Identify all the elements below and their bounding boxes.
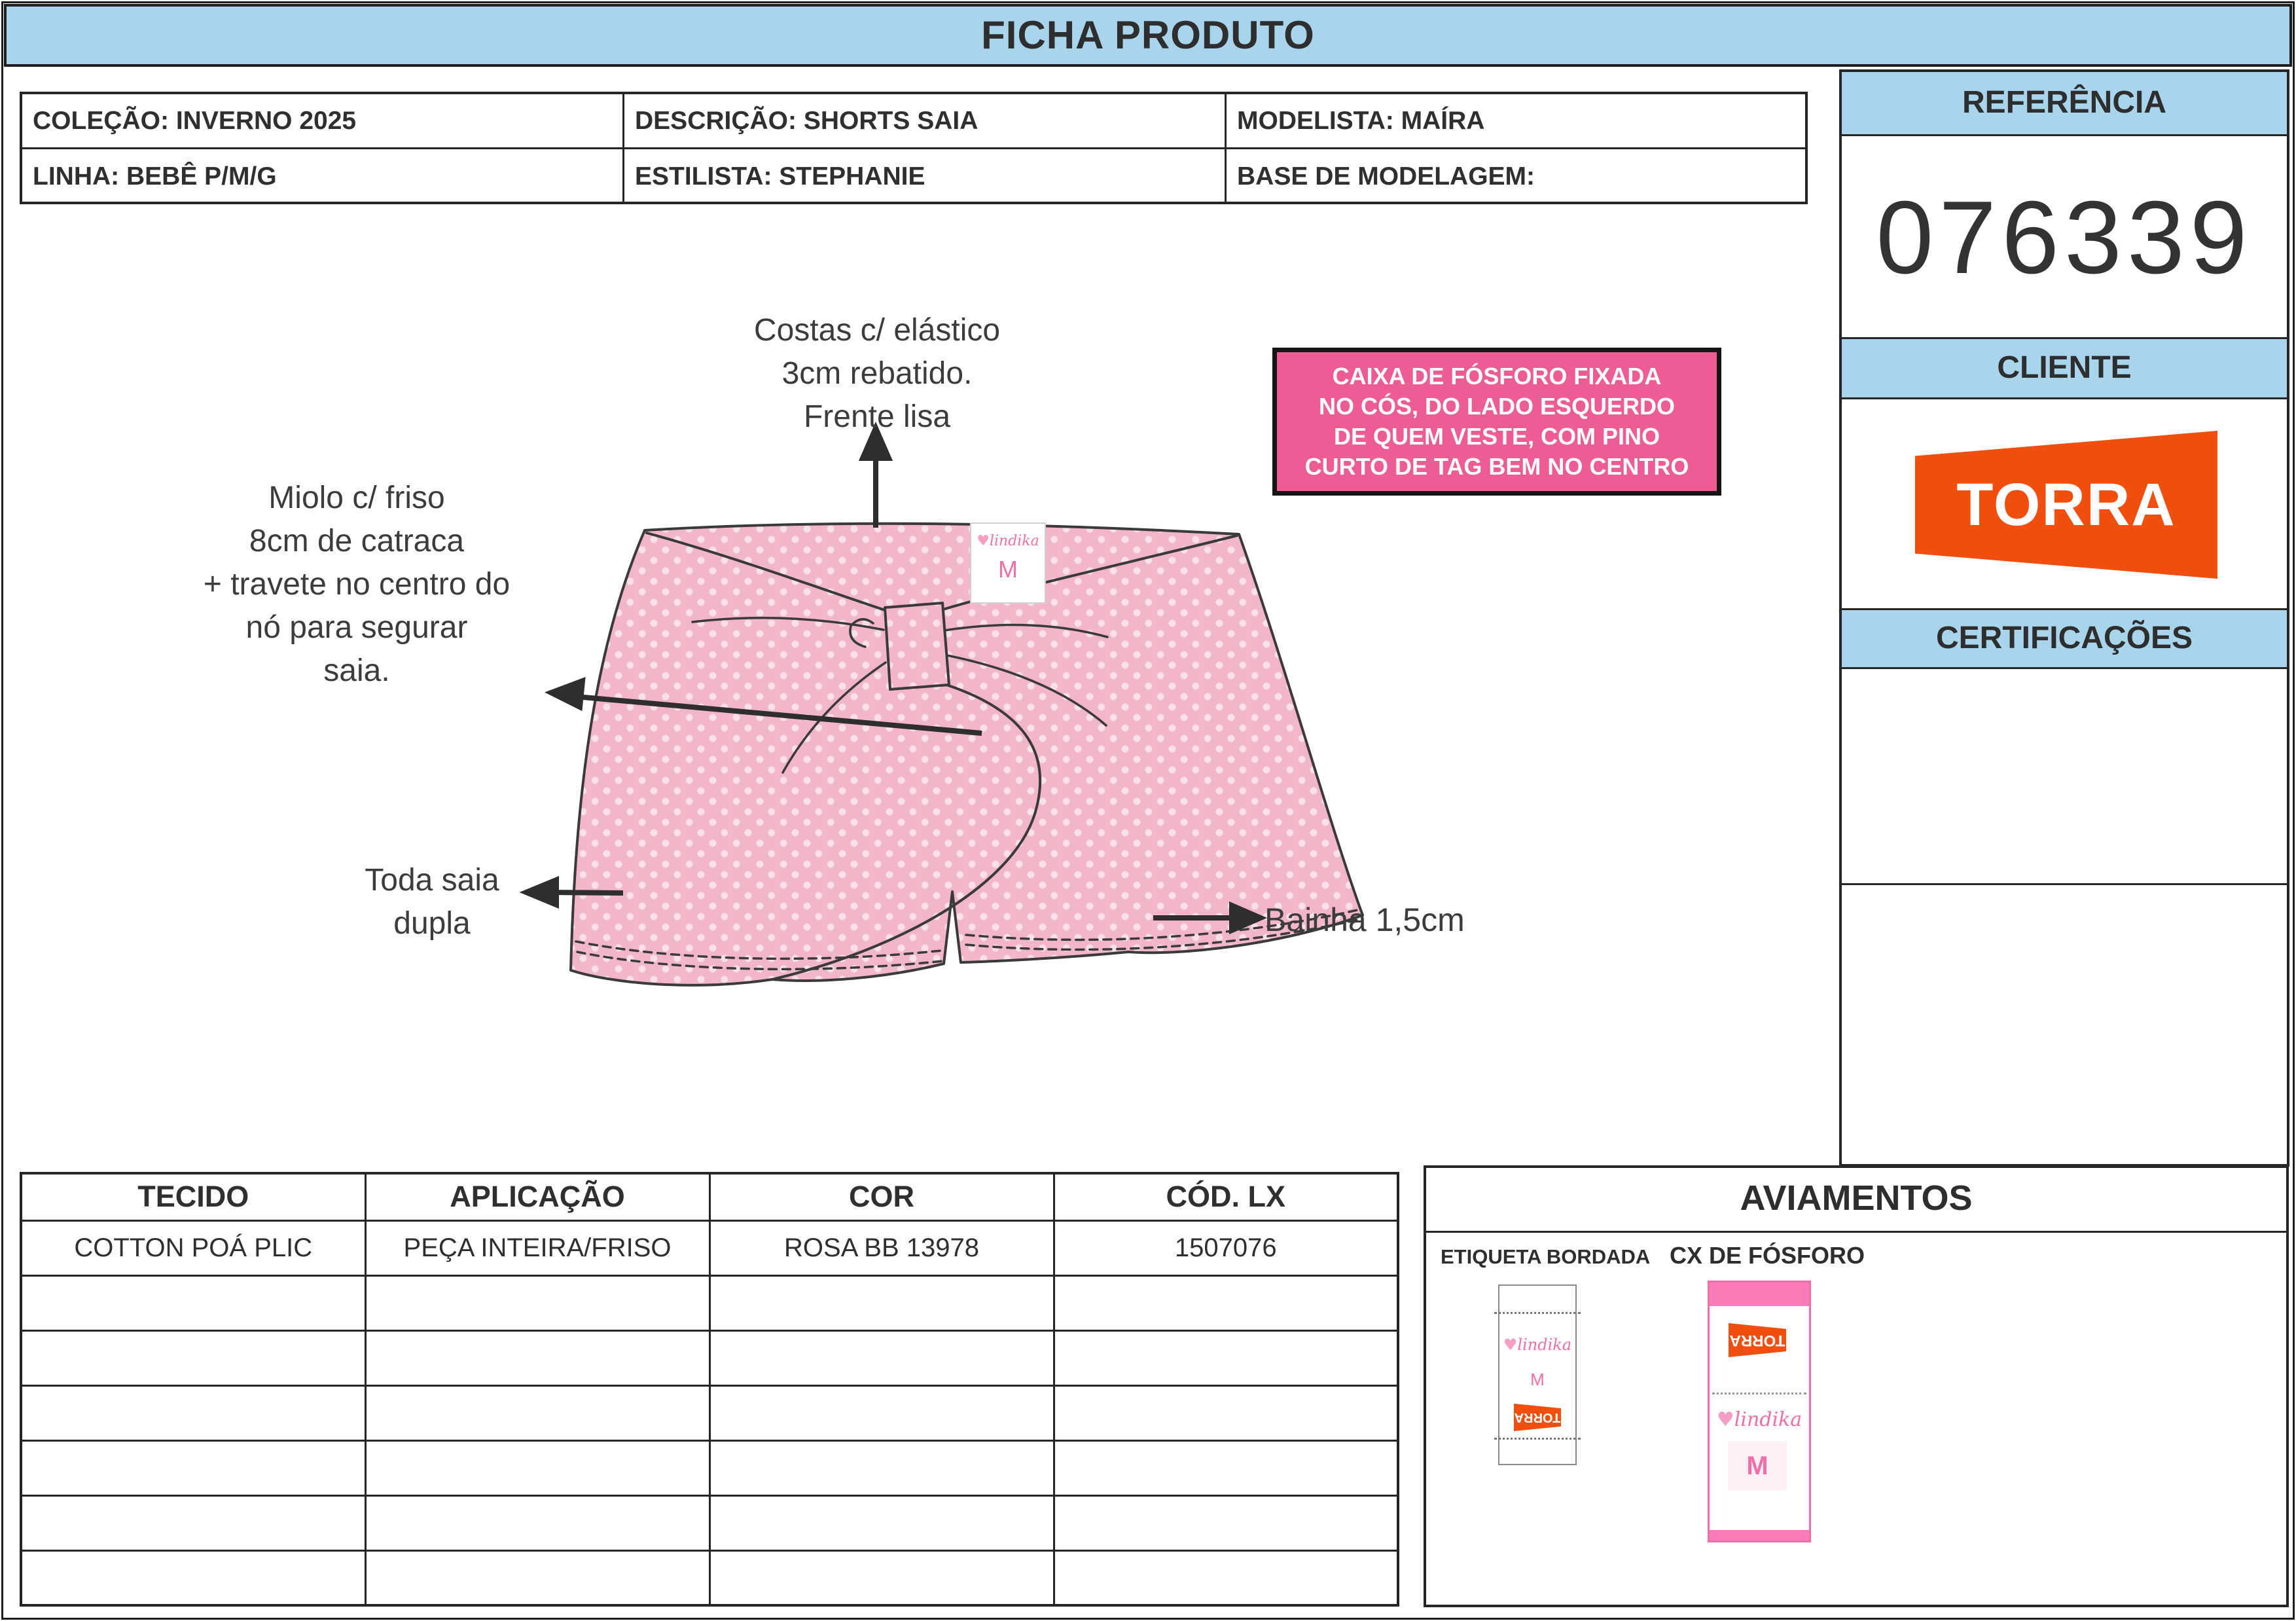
table-cell-empty [365, 1385, 709, 1440]
referencia-header: REFERÊNCIA [1842, 72, 2287, 136]
tag-pink-band [1710, 1530, 1809, 1540]
sidebar: REFERÊNCIA 076339 CLIENTE TORRA CERTIFIC… [1839, 69, 2289, 1167]
table-cell-empty [1054, 1495, 1398, 1550]
table-cell-empty [709, 1330, 1054, 1385]
sidebar-empty-box [1842, 885, 2287, 1163]
table-cell-empty [365, 1495, 709, 1550]
table-row: COTTON POÁ PLIC PEÇA INTEIRA/FRISO ROSA … [21, 1220, 1398, 1275]
cliente-logo-box: TORRA [1842, 399, 2287, 610]
torra-logo-inverted: TORRA [1729, 1323, 1786, 1357]
brand-lindika: ♥lindika [971, 533, 1045, 549]
table-cell-empty [1054, 1330, 1398, 1385]
knot [885, 603, 949, 689]
table-cell-empty [1054, 1385, 1398, 1440]
cx-fosforo-label: CX DE FÓSFORO [1670, 1242, 1865, 1269]
table-row [21, 1275, 1398, 1330]
table-cell-empty [709, 1440, 1054, 1495]
label-size: M [971, 556, 1045, 583]
aviamentos-title: AVIAMENTOS [1426, 1168, 2286, 1233]
table-cell-empty [21, 1495, 365, 1550]
arrow-toda-saia [550, 892, 623, 893]
certificacoes-header: CERTIFICAÇÕES [1842, 610, 2287, 669]
referencia-value: 076339 [1842, 136, 2287, 339]
etiqueta-bordada-label: ETIQUETA BORDADA [1441, 1245, 1650, 1269]
table-row [21, 1330, 1398, 1385]
tag-size: M [1499, 1370, 1575, 1390]
table-cell-empty [21, 1330, 365, 1385]
etiqueta-bordada-tag: ♥lindika M TORRA [1498, 1284, 1577, 1465]
col-aplicacao: APLICAÇÃO [365, 1173, 709, 1220]
table-row [21, 1385, 1398, 1440]
heart-icon: ♥ [977, 533, 990, 549]
cell-tecido: COTTON POÁ PLIC [21, 1220, 365, 1275]
cx-fosforo-tag: TORRA ♥lindika M [1708, 1281, 1811, 1542]
aviamentos-section: AVIAMENTOS ETIQUETA BORDADA CX DE FÓSFOR… [1424, 1165, 2289, 1607]
table-cell-empty [709, 1495, 1054, 1550]
table-cell-empty [21, 1275, 365, 1330]
garment-brand-label: ♥lindika M [970, 522, 1046, 604]
table-cell-empty [709, 1275, 1054, 1330]
table-cell-empty [365, 1275, 709, 1330]
table-cell-empty [1054, 1275, 1398, 1330]
tag-size: M [1728, 1441, 1787, 1491]
table-cell-empty [365, 1330, 709, 1385]
heart-icon: ♥ [1717, 1408, 1734, 1431]
ficha-produto-page: FICHA PRODUTO COLEÇÃO: INVERNO 2025 DESC… [0, 0, 2296, 1621]
annotation-bainha: Bainha 1,5cm [1265, 898, 1657, 941]
table-cell-empty [21, 1550, 365, 1605]
table-cell-empty [365, 1440, 709, 1495]
table-cell-empty [21, 1385, 365, 1440]
cell-cod-lx: 1507076 [1054, 1220, 1398, 1275]
table-row [21, 1495, 1398, 1550]
fold-dotted-line [1712, 1393, 1806, 1394]
cell-aplicacao: PEÇA INTEIRA/FRISO [365, 1220, 709, 1275]
table-cell-empty [1054, 1440, 1398, 1495]
tag-pink-band [1710, 1283, 1809, 1306]
fold-dotted-line [1494, 1438, 1581, 1440]
table-header-row: TECIDO APLICAÇÃO COR CÓD. LX [21, 1173, 1398, 1220]
arrowhead-toda-saia [526, 880, 556, 905]
cell-cor: ROSA BB 13978 [709, 1220, 1054, 1275]
cliente-header: CLIENTE [1842, 339, 2287, 399]
fold-dotted-line [1494, 1312, 1581, 1314]
col-cod-lx: CÓD. LX [1054, 1173, 1398, 1220]
table-cell-empty [709, 1550, 1054, 1605]
torra-logo-inverted: TORRA [1514, 1404, 1561, 1431]
tag-brand: ♥lindika [1710, 1408, 1809, 1431]
table-row [21, 1440, 1398, 1495]
materials-table: TECIDO APLICAÇÃO COR CÓD. LX COTTON POÁ … [20, 1172, 1399, 1607]
annotation-costas: Costas c/ elástico 3cm rebatido. Frente … [687, 309, 1067, 439]
note-caixa-fosforo: CAIXA DE FÓSFORO FIXADA NO CÓS, DO LADO … [1272, 348, 1721, 496]
table-cell-empty [1054, 1550, 1398, 1605]
table-row [21, 1550, 1398, 1605]
torra-logo: TORRA [1915, 431, 2217, 579]
annotation-toda-saia: Toda saia dupla [337, 859, 527, 945]
annotation-miolo: Miolo c/ friso 8cm de catraca + travete … [98, 477, 615, 693]
table-cell-empty [21, 1440, 365, 1495]
tag-brand: ♥lindika [1499, 1336, 1575, 1354]
heart-icon: ♥ [1503, 1336, 1518, 1354]
certificacoes-box [1842, 669, 2287, 885]
col-cor: COR [709, 1173, 1054, 1220]
col-tecido: TECIDO [21, 1173, 365, 1220]
table-cell-empty [709, 1385, 1054, 1440]
table-cell-empty [365, 1550, 709, 1605]
